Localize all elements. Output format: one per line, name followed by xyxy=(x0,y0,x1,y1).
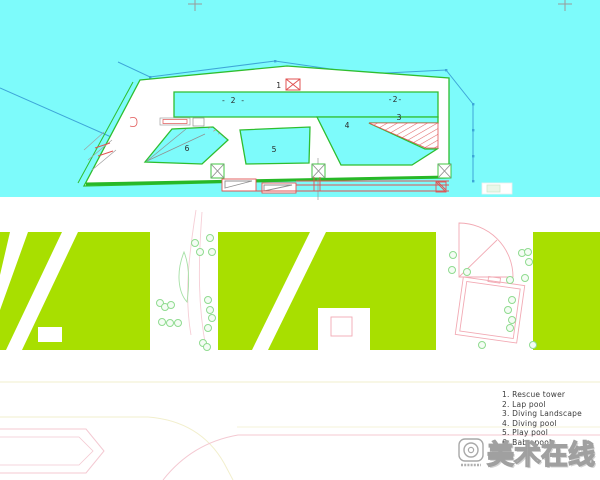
legend-item: 3. Diving Landscape xyxy=(502,409,582,419)
kiosk-notch xyxy=(318,308,370,350)
legend-item: 2. Lap pool xyxy=(502,400,582,410)
service-structures xyxy=(160,118,204,126)
watermark-text: 美术在线 xyxy=(487,433,595,472)
legend-item: 1. Rescue tower xyxy=(502,390,582,400)
tree-symbols xyxy=(157,235,216,351)
label-rescue-tower: 1 xyxy=(276,81,281,90)
pier-structure xyxy=(482,183,512,194)
tilted-pavilion xyxy=(455,273,525,343)
stair-notch xyxy=(38,327,62,342)
watermark-logo-icon xyxy=(458,438,484,468)
label-baby-pool: 6 xyxy=(185,144,190,153)
label-play-pool: 5 xyxy=(272,145,277,154)
label-diving-landscape: 3 xyxy=(397,113,402,122)
planting-gap-center xyxy=(179,210,206,348)
label-lap-pool-left: - 2 - xyxy=(221,96,245,105)
watermark: 美术在线 xyxy=(458,433,595,472)
label-diving-pool: 4 xyxy=(345,121,350,130)
rescue-tower xyxy=(286,79,300,90)
label-lap-pool-right: -2- xyxy=(388,95,402,104)
legend-item: 4. Diving pool xyxy=(502,419,582,429)
